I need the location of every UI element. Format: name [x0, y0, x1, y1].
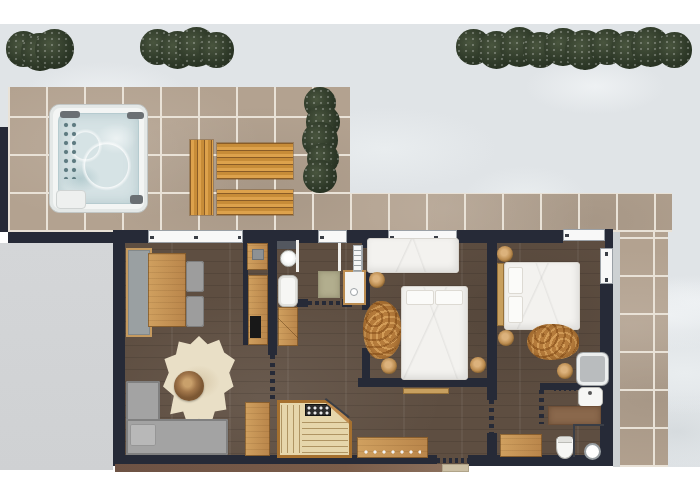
- snow-ground-right: [664, 232, 700, 467]
- driveway: [0, 243, 113, 470]
- shower-drain-icon: [350, 288, 358, 296]
- shower-glass-h: [573, 424, 604, 426]
- washbasin-square: [578, 387, 603, 407]
- wood-deck-vertical: [190, 140, 213, 215]
- terrace-top-band: [350, 193, 672, 232]
- single-bed: [367, 238, 459, 273]
- bath1-counter: [277, 241, 297, 249]
- sofa-throw: [130, 424, 156, 446]
- wall-left: [113, 230, 125, 466]
- hall-sideboard: [357, 437, 428, 458]
- hot-tub-headrest: [127, 112, 144, 119]
- wooden-stool: [557, 363, 573, 379]
- sideboard-items: [363, 450, 421, 454]
- window-living: [148, 230, 243, 243]
- wall-kitchen-bath: [268, 232, 277, 355]
- floor-plan: [0, 0, 700, 500]
- wooden-stool: [497, 246, 513, 262]
- headboard: [497, 263, 504, 326]
- toilet: [556, 436, 574, 459]
- faucet-icon: [588, 391, 592, 395]
- sauna-bench-vertical: [281, 405, 302, 453]
- wall-hall-right: [487, 433, 497, 466]
- glass-wall-bath1: [308, 301, 342, 305]
- bath1-divider: [296, 240, 299, 272]
- shower: [343, 270, 366, 305]
- towel-radiator: [354, 246, 361, 271]
- lower-terrace-strip: [115, 464, 445, 472]
- garden-wall-left: [0, 127, 8, 232]
- bath1-divider: [338, 243, 341, 271]
- sauna-bench-horizontal: [302, 419, 348, 453]
- pillow: [406, 290, 434, 305]
- bedroom1-bench: [403, 388, 449, 394]
- sheepskin-rug-2: [527, 324, 579, 360]
- hot-tub: [50, 105, 147, 212]
- wooden-stool: [381, 358, 397, 374]
- towel-rail: [554, 388, 578, 391]
- cooktop: [250, 316, 261, 338]
- wooden-stool: [498, 330, 514, 346]
- wood-deck-lower: [217, 190, 293, 215]
- corner-post: [605, 229, 613, 249]
- double-bed-1: [401, 286, 468, 380]
- gravel-strip: [613, 232, 620, 467]
- pouf: [174, 371, 204, 401]
- dining-chair: [186, 261, 204, 292]
- window-bathroom: [318, 230, 347, 243]
- entrance-mat: [442, 464, 469, 472]
- dining-table: [148, 253, 186, 327]
- hall-cabinet: [245, 402, 270, 456]
- pillow: [435, 290, 463, 305]
- hot-tub-headrest: [60, 111, 80, 118]
- wall-bed1-bed2: [487, 232, 497, 400]
- hall-wardrobe: [278, 307, 298, 346]
- shower-mat: [318, 271, 340, 298]
- corner-window-right: [600, 248, 613, 284]
- sheepskin-rug-1: [363, 301, 401, 359]
- kitchen-sink: [252, 249, 264, 260]
- entry-door-threshold: [437, 458, 468, 463]
- washbasin-round: [280, 250, 297, 267]
- wooden-stool: [369, 272, 385, 288]
- sliding-door-living-hall[interactable]: [270, 355, 275, 400]
- door-bath2[interactable]: [539, 390, 544, 424]
- bath-mat: [548, 406, 601, 425]
- shower-glass-v: [573, 424, 575, 457]
- wall-bath1-stub: [297, 299, 308, 307]
- hot-tub-control: [130, 195, 143, 204]
- armchair: [577, 353, 608, 385]
- garden-wall: [8, 232, 125, 243]
- hot-tub-step: [56, 190, 86, 209]
- corner-window-top: [563, 229, 605, 241]
- wooden-stool: [470, 357, 486, 373]
- door-hall-right[interactable]: [489, 400, 494, 433]
- wood-deck-upper: [217, 143, 293, 179]
- dining-chair: [186, 296, 204, 327]
- pillow: [508, 267, 523, 294]
- hot-tub-jets: [62, 121, 78, 179]
- shower-drain-icon: [584, 443, 601, 460]
- vanity-cabinet: [500, 434, 542, 457]
- pillow: [508, 296, 523, 323]
- double-bed-2: [504, 262, 580, 330]
- bathtub: [278, 275, 298, 307]
- terrace-right-column: [615, 232, 668, 467]
- sauna-heater: [306, 405, 330, 415]
- wall-top: [457, 230, 563, 243]
